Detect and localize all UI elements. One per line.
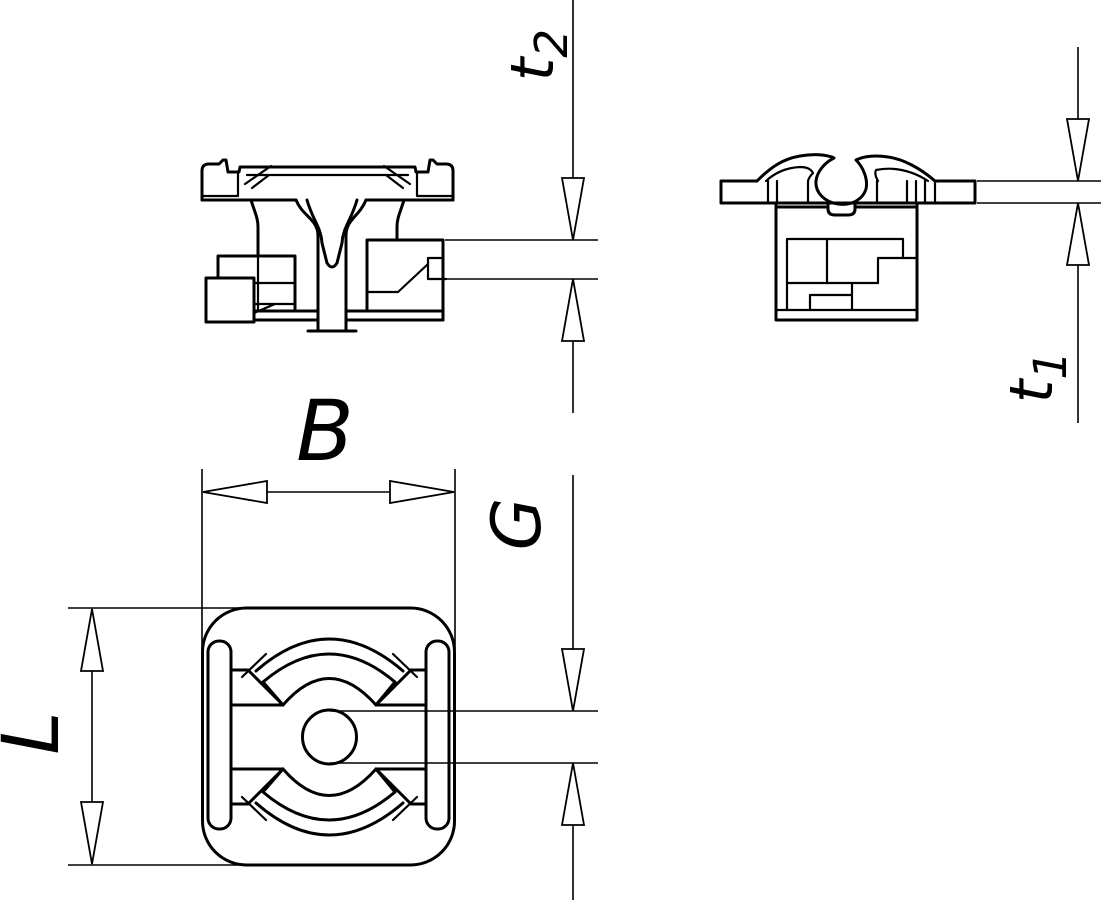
t2-arrow-up (562, 279, 584, 341)
dimension-label-g: G (478, 498, 557, 551)
l-arrow-up (81, 609, 103, 671)
plan-top-wing-teeth (231, 670, 426, 705)
g-arrow-up (562, 763, 584, 825)
left-lower-square (206, 278, 254, 322)
dimension-label-t1: t1 (997, 351, 1077, 403)
t1-arrow-down (1067, 119, 1089, 181)
left-leg (251, 200, 258, 256)
left-block-details (254, 256, 295, 313)
side-wing-profile (757, 155, 935, 205)
side-body (776, 203, 917, 320)
right-block-details (367, 258, 446, 292)
front-section-view (202, 160, 453, 331)
stem-slot (307, 200, 357, 267)
plan-bottom-wing-teeth (231, 769, 426, 804)
dimension-t1: t1 (977, 47, 1101, 423)
plan-outer-body (203, 608, 455, 865)
dimension-g: G (330, 475, 598, 900)
side-flange-bar (721, 181, 975, 203)
b-arrow-right (390, 481, 454, 503)
plan-center-hole (303, 710, 357, 764)
g-dimension-lines (330, 475, 598, 900)
plan-center-band (231, 705, 426, 769)
plan-left-spring-strip (208, 641, 231, 829)
side-wing-inner-left (766, 167, 813, 181)
plan-right-spring-strip (426, 641, 449, 829)
bottom-bars (254, 311, 443, 331)
dimension-label-l: L (0, 711, 77, 754)
dimension-t2: t2 (445, 0, 598, 413)
technical-drawing-canvas: t2 t1 B G L (0, 0, 1101, 900)
technical-drawing-page: t2 t1 B G L (0, 0, 1101, 900)
plan-bottom-wing-arcs (256, 769, 403, 835)
l-arrow-down (81, 802, 103, 864)
dimension-label-b: B (296, 382, 354, 480)
side-body-inner-details (776, 239, 917, 310)
side-bar-verticals (768, 181, 935, 203)
plan-top-wing-arcs (256, 639, 403, 705)
t1-arrow-up (1067, 203, 1089, 265)
side-section-view (721, 155, 975, 320)
t2-arrow-down (562, 178, 584, 240)
g-arrow-down (562, 649, 584, 711)
flange-tooth-hatch-right (384, 166, 410, 188)
flange-tooth-hatch-left (245, 166, 271, 188)
dimension-label-t2: t2 (498, 29, 578, 81)
b-arrow-left (203, 481, 267, 503)
flange-outline (202, 160, 453, 200)
right-leg (397, 200, 404, 240)
plan-view (203, 608, 455, 865)
